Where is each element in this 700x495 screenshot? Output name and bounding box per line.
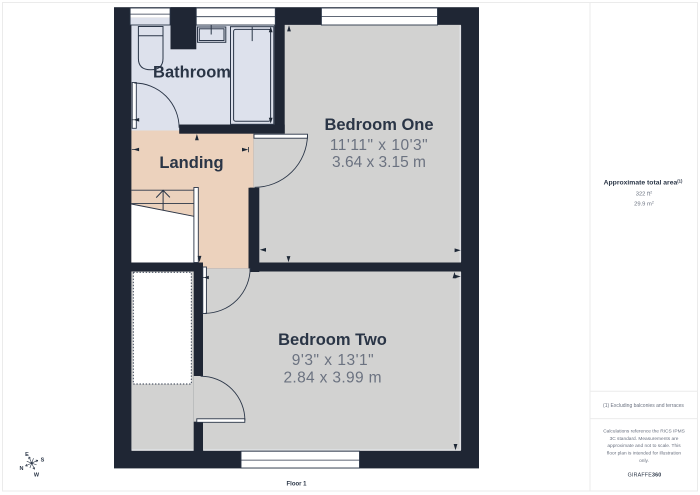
svg-text:(1) Excluding balconies and te: (1) Excluding balconies and terraces (603, 403, 684, 409)
svg-text:Calculations reference the RIC: Calculations reference the RICS IPMS (603, 428, 685, 434)
svg-text:11'11" x 10'3": 11'11" x 10'3" (330, 137, 428, 154)
svg-text:floor plan is intended for ill: floor plan is intended for illustration (607, 451, 681, 457)
svg-text:Bedroom One: Bedroom One (324, 116, 433, 134)
svg-text:GIRAFFE360: GIRAFFE360 (628, 473, 662, 479)
svg-text:322 ft2: 322 ft2 (636, 191, 653, 198)
svg-text:29.9 m2: 29.9 m2 (634, 201, 654, 208)
svg-text:2.84 x 3.99 m: 2.84 x 3.99 m (283, 369, 381, 386)
svg-text:N: N (20, 466, 24, 472)
svg-text:9'3" x 13'1": 9'3" x 13'1" (292, 352, 374, 369)
svg-text:Floor 1: Floor 1 (286, 481, 307, 487)
svg-text:3C standard. Measurements are: 3C standard. Measurements are (610, 436, 679, 442)
svg-text:W: W (34, 473, 40, 479)
svg-text:3.64 x 3.15 m: 3.64 x 3.15 m (332, 154, 426, 171)
svg-text:S: S (41, 458, 45, 464)
svg-text:Bathroom: Bathroom (153, 63, 231, 81)
svg-text:only.: only. (639, 458, 649, 464)
svg-text:approximate and not to scale.: approximate and not to scale. This (607, 443, 681, 449)
svg-text:Approximate total area(1): Approximate total area(1) (604, 178, 683, 186)
svg-text:E: E (25, 452, 29, 458)
svg-text:Bedroom Two: Bedroom Two (278, 331, 387, 349)
svg-text:Landing: Landing (159, 154, 223, 172)
